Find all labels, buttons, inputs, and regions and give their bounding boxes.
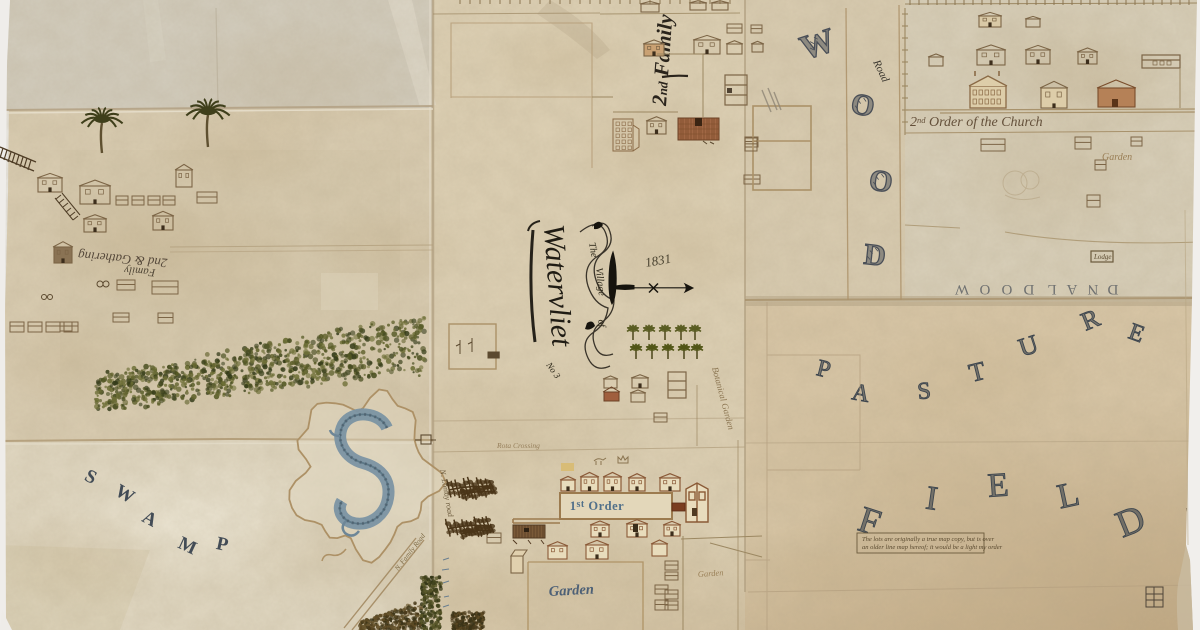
svg-text:S: S [916,378,932,405]
svg-text:L: L [1047,281,1056,297]
svg-text:D: D [862,238,887,273]
svg-text:2nd Order of the Church: 2nd Order of the Church [910,115,1043,130]
svg-text:Garden: Garden [697,567,723,579]
svg-text:Garden: Garden [1102,152,1132,163]
svg-text:O: O [1001,281,1012,297]
svg-text:an older line map hereof; it w: an older line map hereof; it would be a … [862,544,1003,551]
svg-text:W: W [954,281,969,297]
svg-text:Garden: Garden [548,582,594,600]
svg-text:D: D [1107,281,1118,297]
svg-text:D: D [1023,281,1034,297]
svg-text:E: E [986,467,1009,505]
svg-text:O: O [867,163,895,199]
svg-text:Lodge: Lodge [1093,253,1112,261]
svg-text:O: O [979,281,990,297]
svg-text:N: N [1087,281,1098,297]
svg-text:The lots are originally a true: The lots are originally a true map copy,… [862,536,995,543]
svg-text:A: A [1066,281,1077,297]
svg-text:Rota Crossing: Rota Crossing [496,441,540,450]
